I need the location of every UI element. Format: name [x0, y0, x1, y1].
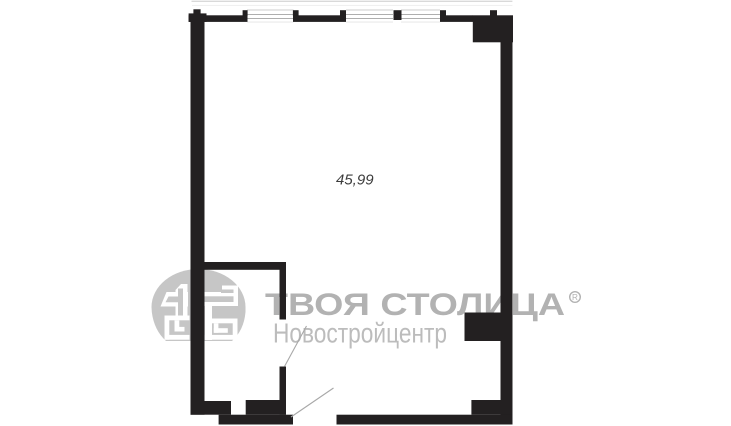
svg-text:Новостройцентр: Новостройцентр [273, 318, 447, 349]
svg-text:45,99: 45,99 [336, 172, 374, 189]
svg-text:R: R [572, 293, 578, 302]
